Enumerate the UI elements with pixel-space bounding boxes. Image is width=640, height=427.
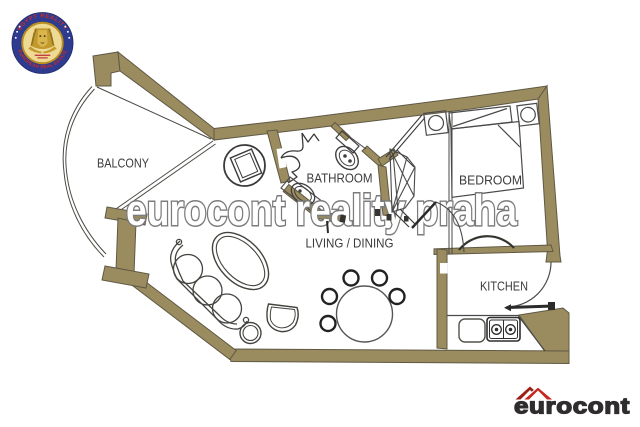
svg-text:BEDROOM: BEDROOM: [459, 173, 522, 188]
svg-text:LIVING / DINING: LIVING / DINING: [306, 236, 394, 251]
svg-text:eurocont: eurocont: [514, 394, 630, 419]
svg-text:BALCONY: BALCONY: [97, 156, 149, 171]
svg-text:BATHROOM: BATHROOM: [307, 171, 373, 186]
svg-text:KITCHEN: KITCHEN: [480, 279, 528, 294]
svg-text:eurocont reality praha: eurocont reality praha: [126, 187, 518, 235]
